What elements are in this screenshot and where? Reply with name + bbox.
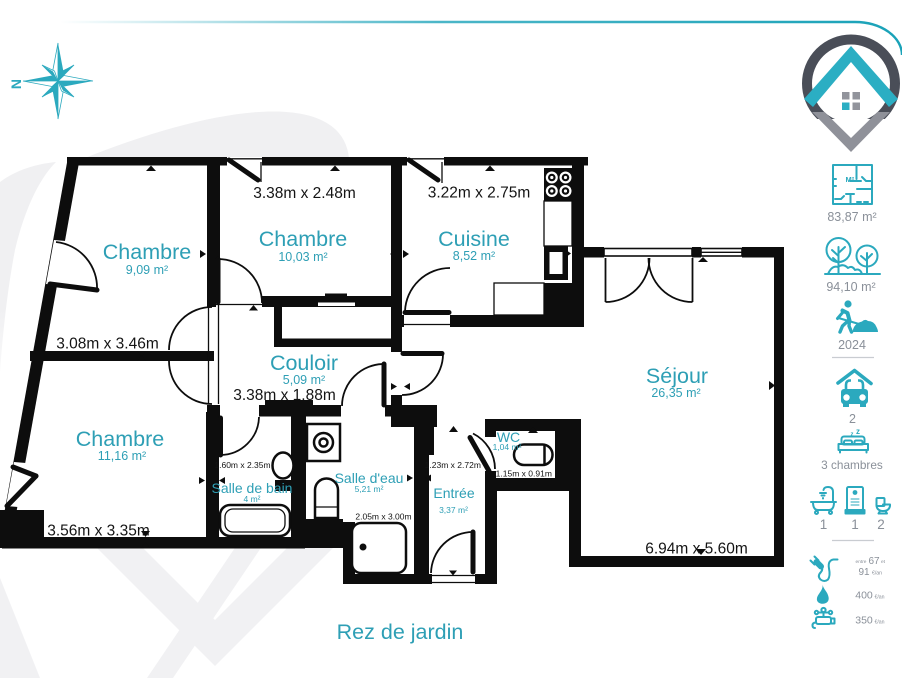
svg-text:8,52 m²: 8,52 m² — [453, 249, 495, 263]
svg-text:3,37 m²: 3,37 m² — [439, 505, 468, 515]
svg-text:94,10 m²: 94,10 m² — [826, 280, 875, 294]
svg-text:10,03 m²: 10,03 m² — [278, 250, 327, 264]
svg-text:1,04 m²: 1,04 m² — [493, 442, 522, 452]
svg-text:€/an: €/an — [874, 595, 884, 601]
svg-text:2: 2 — [849, 412, 856, 426]
svg-text:2: 2 — [877, 517, 885, 532]
svg-text:3.08m x 3.46m: 3.08m x 3.46m — [56, 336, 159, 353]
svg-text:€/an: €/an — [874, 620, 884, 626]
svg-text:entre: entre — [856, 559, 867, 565]
svg-text:3.56m x 3.35m: 3.56m x 3.35m — [47, 523, 150, 540]
svg-text:Cuisine: Cuisine — [438, 227, 510, 251]
svg-text:N: N — [8, 79, 24, 89]
svg-text:400: 400 — [855, 590, 873, 602]
svg-text:3.38m x 1.88m: 3.38m x 1.88m — [233, 387, 336, 404]
svg-text:2024: 2024 — [838, 338, 866, 352]
svg-text:9,09 m²: 9,09 m² — [126, 263, 168, 277]
svg-text:z: z — [851, 432, 854, 438]
svg-text:1.15m x 0.91m: 1.15m x 0.91m — [496, 469, 552, 479]
svg-text:5,21 m²: 5,21 m² — [355, 484, 384, 494]
svg-text:1.23m x 2.72m: 1.23m x 2.72m — [425, 460, 481, 470]
svg-text:Chambre: Chambre — [103, 240, 191, 264]
svg-text:67: 67 — [868, 556, 880, 567]
svg-text:350: 350 — [855, 615, 873, 627]
svg-text:6.94m x 5.60m: 6.94m x 5.60m — [645, 541, 748, 558]
svg-text:Rez de jardin: Rez de jardin — [337, 620, 464, 644]
svg-text:91: 91 — [858, 567, 870, 578]
svg-text:1: 1 — [851, 517, 859, 532]
svg-text:et: et — [881, 559, 886, 565]
svg-text:26,35 m²: 26,35 m² — [651, 386, 700, 400]
svg-text:Entrée: Entrée — [433, 485, 474, 501]
svg-text:1.60m x 2.35m: 1.60m x 2.35m — [214, 460, 270, 470]
svg-text:3.38m x 2.48m: 3.38m x 2.48m — [253, 185, 356, 202]
svg-text:Séjour: Séjour — [646, 364, 708, 388]
svg-text:2.05m x 3.00m: 2.05m x 3.00m — [355, 512, 411, 522]
svg-text:z: z — [856, 427, 860, 436]
svg-text:M²: M² — [846, 175, 855, 184]
svg-text:Chambre: Chambre — [76, 427, 164, 451]
svg-text:3 chambres: 3 chambres — [821, 458, 883, 472]
svg-text:83,87 m²: 83,87 m² — [827, 210, 876, 224]
svg-text:Chambre: Chambre — [259, 227, 347, 251]
svg-text:1: 1 — [820, 517, 828, 532]
svg-text:11,16 m²: 11,16 m² — [98, 449, 146, 463]
svg-text:3.22m x 2.75m: 3.22m x 2.75m — [428, 185, 531, 202]
svg-text:Couloir: Couloir — [270, 351, 338, 375]
svg-text:4 m²: 4 m² — [244, 494, 261, 504]
svg-text:€/an: €/an — [872, 571, 882, 577]
svg-text:5,09 m²: 5,09 m² — [283, 373, 325, 387]
